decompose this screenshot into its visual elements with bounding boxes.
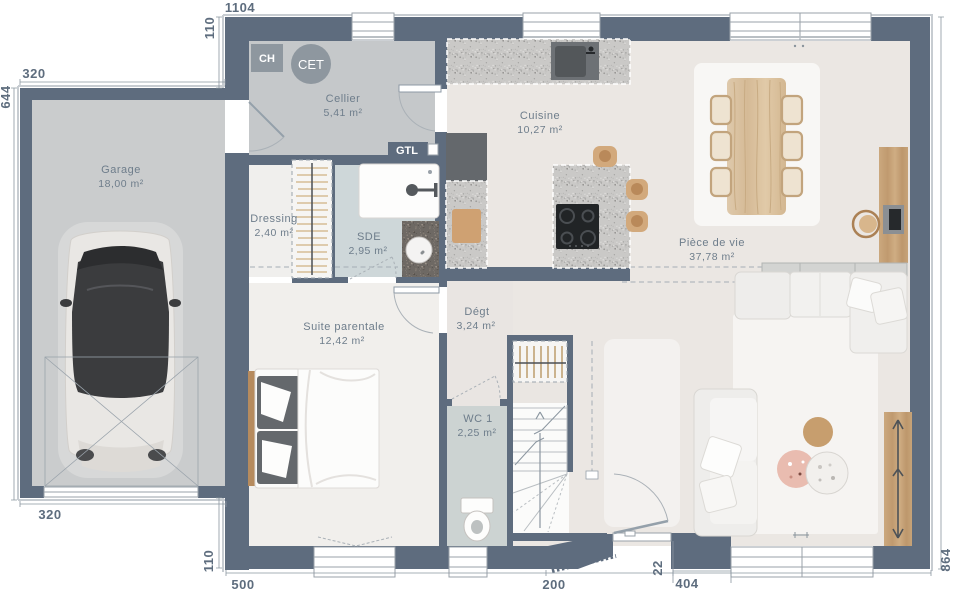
svg-text:404: 404 (675, 576, 698, 591)
svg-text:3,24 m²: 3,24 m² (456, 320, 495, 332)
svg-text:CH: CH (259, 53, 275, 65)
svg-text:22: 22 (650, 560, 665, 575)
svg-text:Cuisine: Cuisine (520, 110, 560, 122)
svg-text:320: 320 (38, 507, 61, 522)
svg-text:37,78 m²: 37,78 m² (689, 251, 734, 263)
svg-text:18,00 m²: 18,00 m² (98, 178, 143, 190)
svg-text:110: 110 (202, 17, 217, 39)
svg-text:5,41 m²: 5,41 m² (323, 107, 362, 119)
svg-text:Pièce de vie: Pièce de vie (679, 237, 745, 249)
svg-text:Garage: Garage (101, 164, 141, 176)
svg-text:GTL: GTL (396, 145, 418, 157)
svg-text:2,95 m²: 2,95 m² (348, 245, 387, 257)
svg-text:10,27 m²: 10,27 m² (517, 124, 562, 136)
svg-text:1104: 1104 (225, 0, 255, 15)
svg-text:CET: CET (298, 57, 324, 72)
svg-text:500: 500 (231, 577, 254, 592)
svg-text:644: 644 (0, 85, 13, 108)
svg-text:Cellier: Cellier (326, 93, 361, 105)
svg-text:12,42 m²: 12,42 m² (319, 335, 364, 347)
svg-text:WC 1: WC 1 (463, 413, 493, 425)
svg-text:Suite parentale: Suite parentale (303, 321, 385, 333)
svg-text:110: 110 (201, 550, 216, 572)
svg-text:320: 320 (22, 66, 45, 81)
svg-text:864: 864 (938, 548, 953, 571)
svg-text:Dégt: Dégt (464, 306, 489, 318)
svg-text:2,40 m²: 2,40 m² (254, 227, 293, 239)
svg-text:2,25 m²: 2,25 m² (457, 427, 496, 439)
svg-text:200: 200 (542, 577, 565, 592)
svg-text:Dressing: Dressing (250, 213, 297, 225)
svg-text:SDE: SDE (357, 231, 381, 243)
